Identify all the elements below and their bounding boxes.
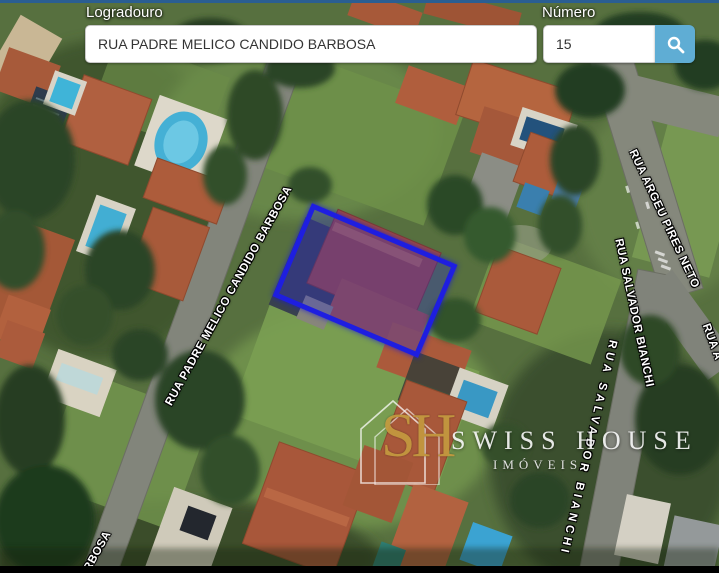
geocode-map-page: RUA PADRE MELICO CANDIDO BARBOSA RUA PAD… (0, 0, 719, 573)
map-viewport[interactable]: RUA PADRE MELICO CANDIDO BARBOSA RUA PAD… (0, 0, 719, 573)
logradouro-label: Logradouro (86, 4, 163, 21)
numero-label: Número (542, 4, 595, 21)
magnifier-icon (666, 35, 685, 54)
address-search-form: Logradouro Número (0, 0, 719, 70)
logradouro-input[interactable] (85, 25, 537, 63)
bottom-letterbox-bar (0, 566, 719, 573)
numero-input[interactable] (543, 25, 655, 63)
search-button[interactable] (655, 25, 695, 63)
